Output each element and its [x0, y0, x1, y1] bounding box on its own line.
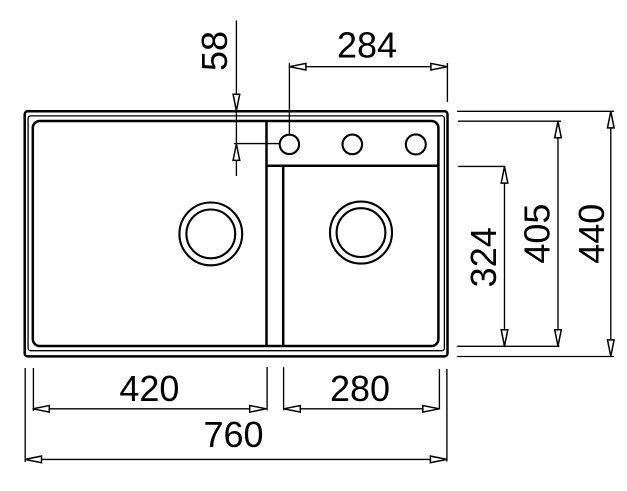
svg-text:284: 284 — [337, 25, 397, 66]
svg-text:405: 405 — [516, 204, 557, 264]
svg-text:440: 440 — [571, 204, 612, 264]
svg-text:324: 324 — [463, 227, 504, 287]
svg-text:280: 280 — [330, 368, 390, 409]
svg-text:420: 420 — [119, 368, 179, 409]
svg-text:58: 58 — [194, 31, 235, 71]
svg-text:760: 760 — [203, 414, 263, 455]
